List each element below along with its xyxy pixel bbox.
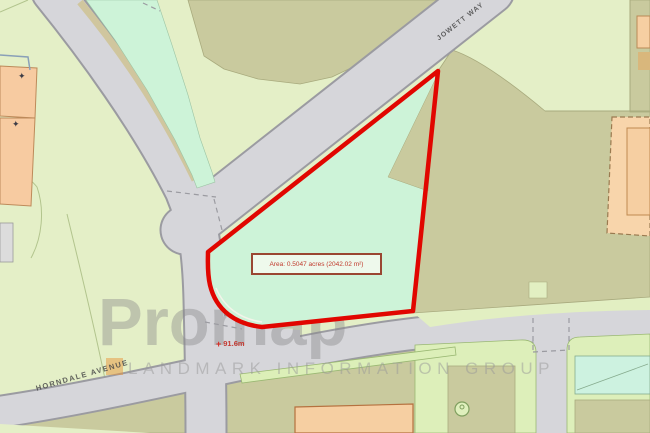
building-right (627, 128, 650, 215)
building-bottom-center (295, 404, 413, 433)
blob-top-right (638, 52, 650, 70)
survey-marker-icon: ✦ (12, 119, 20, 130)
survey-marker-icon: ✦ (18, 71, 26, 82)
parcel-area-label-box: Area: 0.5047 acres (2042.02 m²) (251, 253, 382, 275)
building-left-gray (0, 223, 13, 262)
watermark-subtitle: LANDMARK INFORMATION GROUP (128, 359, 555, 378)
map-canvas[interactable]: Promap ® LANDMARK INFORMATION GROUP JOWE… (0, 0, 650, 433)
plot-right-scrub (575, 400, 650, 433)
verge-notch (529, 282, 547, 298)
tree-symbol (455, 402, 469, 416)
benchmark-cross-icon: + (216, 339, 221, 349)
spot-height-value: 91.6m (223, 339, 244, 348)
building-top-right (637, 16, 650, 48)
building-left-lower (0, 118, 35, 206)
plot-right-mint (575, 356, 650, 394)
parcel-area-label: Area: 0.5047 acres (2042.02 m²) (270, 261, 364, 268)
spot-height: +91.6m (216, 339, 245, 349)
